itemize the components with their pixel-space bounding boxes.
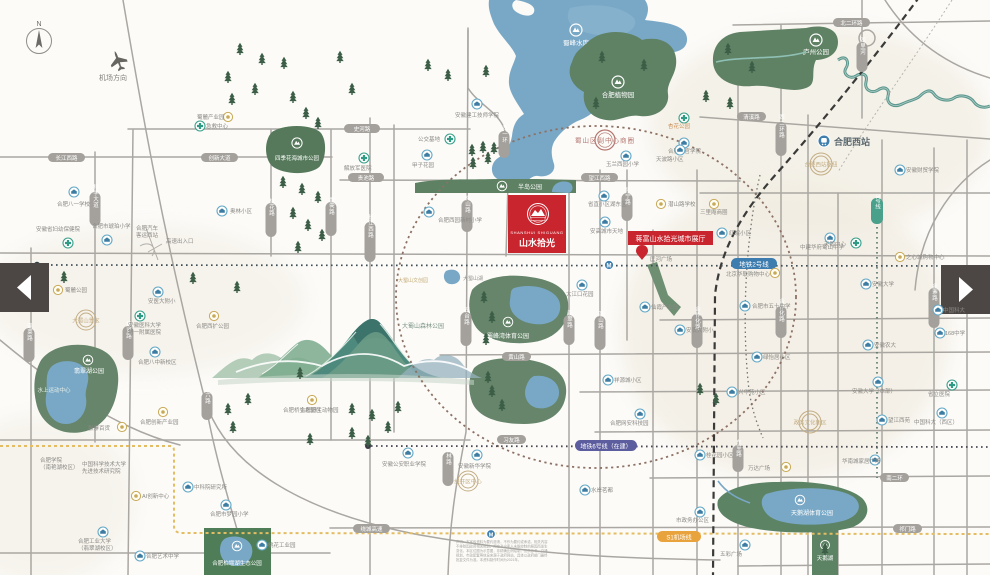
- svg-text:合肥西站枢纽: 合肥西站枢纽: [804, 161, 838, 169]
- svg-text:北京华联购物中心: 北京华联购物中心: [726, 270, 771, 278]
- svg-text:省直小区湖东区: 省直小区湖东区: [588, 200, 627, 208]
- svg-text:经开区中心: 经开区中心: [454, 478, 482, 486]
- svg-text:桃花路: 桃花路: [268, 197, 275, 217]
- svg-text:合肥柏堰湖生态公园: 合肥柏堰湖生态公园: [212, 559, 262, 567]
- svg-text:合肥西园新村小学: 合肥西园新村小学: [438, 216, 483, 224]
- svg-text:蜀山区副中心商圈: 蜀山区副中心商圈: [575, 136, 635, 145]
- svg-text:张寨百货: 张寨百货: [88, 424, 111, 432]
- svg-text:中科院研究所: 中科院研究所: [194, 483, 228, 491]
- svg-text:合肥市梦园小学: 合肥市梦园小学: [210, 510, 249, 518]
- svg-text:大江口花园: 大江口花园: [566, 290, 594, 298]
- svg-text:蒋富山水拾光城市展厅: 蒋富山水拾光城市展厅: [636, 234, 706, 243]
- svg-text:匡河广场: 匡河广场: [650, 255, 673, 263]
- svg-text:安徽财贸学院: 安徽财贸学院: [906, 166, 940, 174]
- svg-text:贵池路: 贵池路: [358, 174, 375, 182]
- svg-text:黄山路: 黄山路: [508, 353, 525, 361]
- svg-text:蓬莱路: 蓬莱路: [26, 322, 33, 342]
- svg-text:大蜀山景区: 大蜀山景区: [72, 317, 100, 325]
- svg-text:北二环路: 北二环路: [840, 19, 863, 27]
- svg-text:合肥市五十中学: 合肥市五十中学: [752, 302, 791, 310]
- svg-text:168中学: 168中学: [945, 329, 966, 337]
- svg-text:天波路小区: 天波路小区: [656, 155, 684, 163]
- svg-text:安徽医科大学: 安徽医科大学: [128, 321, 162, 329]
- svg-text:S1机场线: S1机场线: [666, 534, 691, 542]
- svg-text:合肥植物园: 合肥植物园: [602, 90, 635, 99]
- svg-text:大蜀山文创园: 大蜀山文创园: [398, 277, 428, 284]
- svg-text:桂花园小区: 桂花园小区: [706, 451, 734, 459]
- svg-text:声明：本宣传资料为要约邀请，不作为要约或承诺，相关内容: 声明：本宣传资料为要约邀请，不作为要约或承诺，相关内容: [456, 539, 548, 544]
- svg-text:祥源城小区: 祥源城小区: [614, 376, 642, 384]
- svg-text:蜀峰湾体育公园: 蜀峰湾体育公园: [487, 332, 529, 340]
- svg-text:华南城家居广场: 华南城家居广场: [842, 457, 881, 465]
- svg-text:急救中心: 急救中心: [206, 122, 229, 130]
- svg-text:仙霞产业园: 仙霞产业园: [651, 303, 679, 311]
- svg-text:西二环路: 西二环路: [778, 114, 785, 139]
- svg-text:中国科大（西区）: 中国科大（西区）: [914, 418, 958, 426]
- svg-text:公交基地: 公交基地: [418, 135, 441, 143]
- svg-text:合肥学院: 合肥学院: [40, 456, 63, 464]
- svg-text:地铁6号线（在建）: 地铁6号线（在建）: [580, 443, 631, 451]
- svg-text:安徽大学: 安徽大学: [872, 280, 895, 288]
- svg-text:合肥西站: 合肥西站: [834, 136, 870, 147]
- svg-text:合肥八中新校区: 合肥八中新校区: [138, 358, 177, 366]
- svg-text:安徽公安职业学院: 安徽公安职业学院: [382, 460, 427, 468]
- svg-text:奥林小区: 奥林小区: [230, 207, 253, 215]
- svg-text:桃花工业园: 桃花工业园: [268, 541, 296, 549]
- svg-text:习友路: 习友路: [503, 436, 520, 444]
- svg-text:祁门路: 祁门路: [899, 525, 916, 533]
- svg-text:中国科学技术大学: 中国科学技术大学: [82, 460, 127, 468]
- svg-text:四季花海城市公园: 四季花海城市公园: [275, 154, 320, 162]
- svg-text:望江西苑: 望江西苑: [888, 416, 911, 424]
- svg-text:安徽大学（本部）: 安徽大学（本部）: [852, 387, 896, 395]
- svg-text:合肥汽车: 合肥汽车: [136, 224, 159, 232]
- svg-text:安徽新华学院: 安徽新华学院: [458, 462, 492, 470]
- svg-text:雪霁路: 雪霁路: [328, 197, 335, 216]
- svg-text:石台路: 石台路: [463, 307, 470, 326]
- svg-text:合肥桥生态园区: 合肥桥生态园区: [283, 406, 322, 414]
- svg-text:大蜀山湖: 大蜀山湖: [463, 275, 483, 282]
- svg-text:合肥艺术中学: 合肥艺术中学: [146, 552, 180, 560]
- svg-text:庐州公园: 庐州公园: [803, 47, 829, 56]
- svg-text:（翡翠湖校区）: （翡翠湖校区）: [78, 544, 117, 552]
- svg-text:绕城高速: 绕城高速: [360, 525, 383, 533]
- svg-text:甲子花园: 甲子花园: [412, 161, 435, 169]
- svg-text:中国科大: 中国科大: [943, 306, 966, 314]
- svg-text:地铁2号线: 地铁2号线: [739, 260, 769, 269]
- svg-text:安医大附小: 安医大附小: [148, 297, 176, 305]
- svg-text:N: N: [36, 21, 41, 28]
- svg-text:翡翠路: 翡翠路: [566, 309, 573, 329]
- svg-text:安徽省妇幼保健院: 安徽省妇幼保健院: [36, 225, 81, 233]
- svg-text:清溪路: 清溪路: [743, 113, 760, 121]
- svg-text:水岸茗都: 水岸茗都: [591, 486, 614, 494]
- svg-text:市政务办公区: 市政务办公区: [676, 516, 710, 524]
- svg-text:合肥网安科技园: 合肥网安科技园: [610, 419, 649, 427]
- svg-text:南二环: 南二环: [886, 474, 903, 482]
- svg-text:梅山路: 梅山路: [464, 194, 471, 214]
- svg-text:天鹅湖: 天鹅湖: [817, 554, 834, 562]
- svg-text:东至路: 东至路: [735, 438, 742, 458]
- svg-text:杏花公园: 杏花公园: [668, 122, 691, 130]
- svg-text:长江西路: 长江西路: [55, 154, 78, 162]
- svg-text:合六路: 合六路: [204, 385, 211, 405]
- svg-text:三里庵商圈: 三里庵商圈: [700, 208, 728, 216]
- svg-text:天鹅中心: 天鹅中心: [824, 240, 847, 248]
- svg-text:潜山路学校: 潜山路学校: [668, 200, 696, 208]
- svg-text:合肥八一学校: 合肥八一学校: [57, 200, 91, 208]
- svg-text:枫林路: 枫林路: [445, 446, 452, 466]
- svg-text:政务文化新区: 政务文化新区: [793, 419, 827, 427]
- svg-text:3号线: 3号线: [874, 194, 881, 210]
- svg-text:M: M: [607, 264, 612, 270]
- svg-text:（南艳湖校区）: （南艳湖校区）: [40, 463, 79, 471]
- svg-text:大蜀山森林公园: 大蜀山森林公园: [402, 322, 444, 330]
- svg-text:合作化路: 合作化路: [694, 305, 701, 331]
- svg-text:望江西路: 望江西路: [588, 174, 611, 182]
- svg-text:解放军医院: 解放军医院: [344, 164, 372, 172]
- svg-text:高速出入口: 高速出入口: [166, 237, 194, 245]
- svg-text:红皖小区: 红皖小区: [729, 229, 752, 237]
- svg-text:安农大附小: 安农大附小: [686, 326, 714, 334]
- svg-text:水上运动中心: 水上运动中心: [37, 386, 71, 394]
- svg-text:第一附属医院: 第一附属医院: [128, 328, 162, 336]
- svg-text:科学大道: 科学大道: [92, 183, 99, 209]
- svg-text:安徽建工技师学院: 安徽建工技师学院: [455, 111, 500, 119]
- svg-text:创新大道: 创新大道: [208, 154, 231, 162]
- svg-text:M: M: [489, 533, 494, 539]
- svg-text:翡翠湖公园: 翡翠湖公园: [74, 367, 104, 375]
- svg-text:玉兰西园小学: 玉兰西园小学: [606, 160, 640, 168]
- svg-text:安高城市天地: 安高城市天地: [590, 227, 624, 235]
- svg-text:AI创新中心: AI创新中心: [142, 492, 170, 500]
- svg-text:蜀麓公园: 蜀麓公园: [65, 286, 88, 294]
- svg-text:不排除因政府相关规划、规定及出卖人未能控制的原因而发生: 不排除因政府相关规划、规定及出卖人未能控制的原因而发生: [456, 544, 548, 549]
- svg-text:批复文件为准。本资料制作时间为2021年。: 批复文件为准。本资料制作时间为2021年。: [456, 557, 521, 562]
- svg-text:山水拾光: 山水拾光: [519, 237, 555, 248]
- svg-text:合肥西扩公园: 合肥西扩公园: [196, 322, 230, 330]
- svg-text:西一环: 西一环: [501, 125, 508, 144]
- svg-text:之心城购物中心: 之心城购物中心: [906, 253, 945, 261]
- svg-text:合肥创新产业园: 合肥创新产业园: [140, 418, 179, 426]
- svg-text:绿怡居小区: 绿怡居小区: [763, 353, 791, 361]
- svg-text:变化。本区位图为示意图，非精确比例绘制，仅供参考。交通: 变化。本区位图为示意图，非精确比例绘制，仅供参考。交通: [456, 548, 548, 553]
- svg-text:五彩广场: 五彩广场: [720, 550, 743, 558]
- svg-text:四里河: 四里河: [859, 37, 866, 55]
- svg-text:长江西路: 长江西路: [367, 213, 374, 239]
- svg-text:先进技术研究院: 先进技术研究院: [82, 467, 121, 475]
- svg-text:安徽农大: 安徽农大: [874, 341, 897, 349]
- svg-text:省立医院: 省立医院: [928, 390, 951, 398]
- svg-text:客运西站: 客运西站: [136, 231, 159, 239]
- svg-text:天鹅湖体育公园: 天鹅湖体育公园: [791, 509, 833, 517]
- svg-text:半岛公园: 半岛公园: [518, 183, 542, 191]
- svg-text:史河路: 史河路: [354, 125, 371, 133]
- svg-text:潜山路: 潜山路: [597, 310, 604, 330]
- svg-text:SHANSHUI SHIGUANG: SHANSHUI SHIGUANG: [510, 230, 563, 235]
- svg-text:合肥工业大学: 合肥工业大学: [78, 537, 112, 545]
- svg-text:金寨路: 金寨路: [931, 282, 938, 302]
- svg-text:万达广场: 万达广场: [748, 464, 771, 472]
- svg-text:机场方向: 机场方向: [99, 73, 127, 82]
- svg-text:规划、市政配套等信息来源于政府网站，具体以政府部门最终: 规划、市政配套等信息来源于政府网站，具体以政府部门最终: [456, 553, 548, 558]
- svg-text:兴华苑小区: 兴华苑小区: [738, 388, 766, 396]
- svg-text:合肥市琥珀小学: 合肥市琥珀小学: [92, 222, 131, 230]
- svg-text:蜀麓产业园: 蜀麓产业园: [197, 113, 225, 121]
